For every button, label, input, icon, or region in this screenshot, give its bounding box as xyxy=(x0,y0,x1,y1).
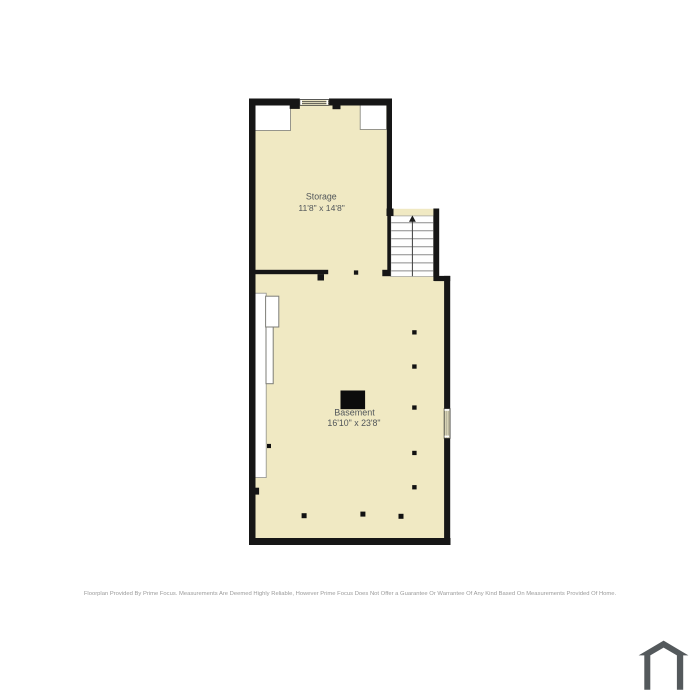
svg-text:11'8" x 14'8": 11'8" x 14'8" xyxy=(298,203,345,213)
svg-text:16'10" x 23'8": 16'10" x 23'8" xyxy=(327,418,380,428)
svg-text:Floorplan Provided By Prime Fo: Floorplan Provided By Prime Focus. Measu… xyxy=(84,591,617,597)
svg-text:Basement: Basement xyxy=(334,407,375,417)
svg-text:Storage: Storage xyxy=(306,191,337,201)
